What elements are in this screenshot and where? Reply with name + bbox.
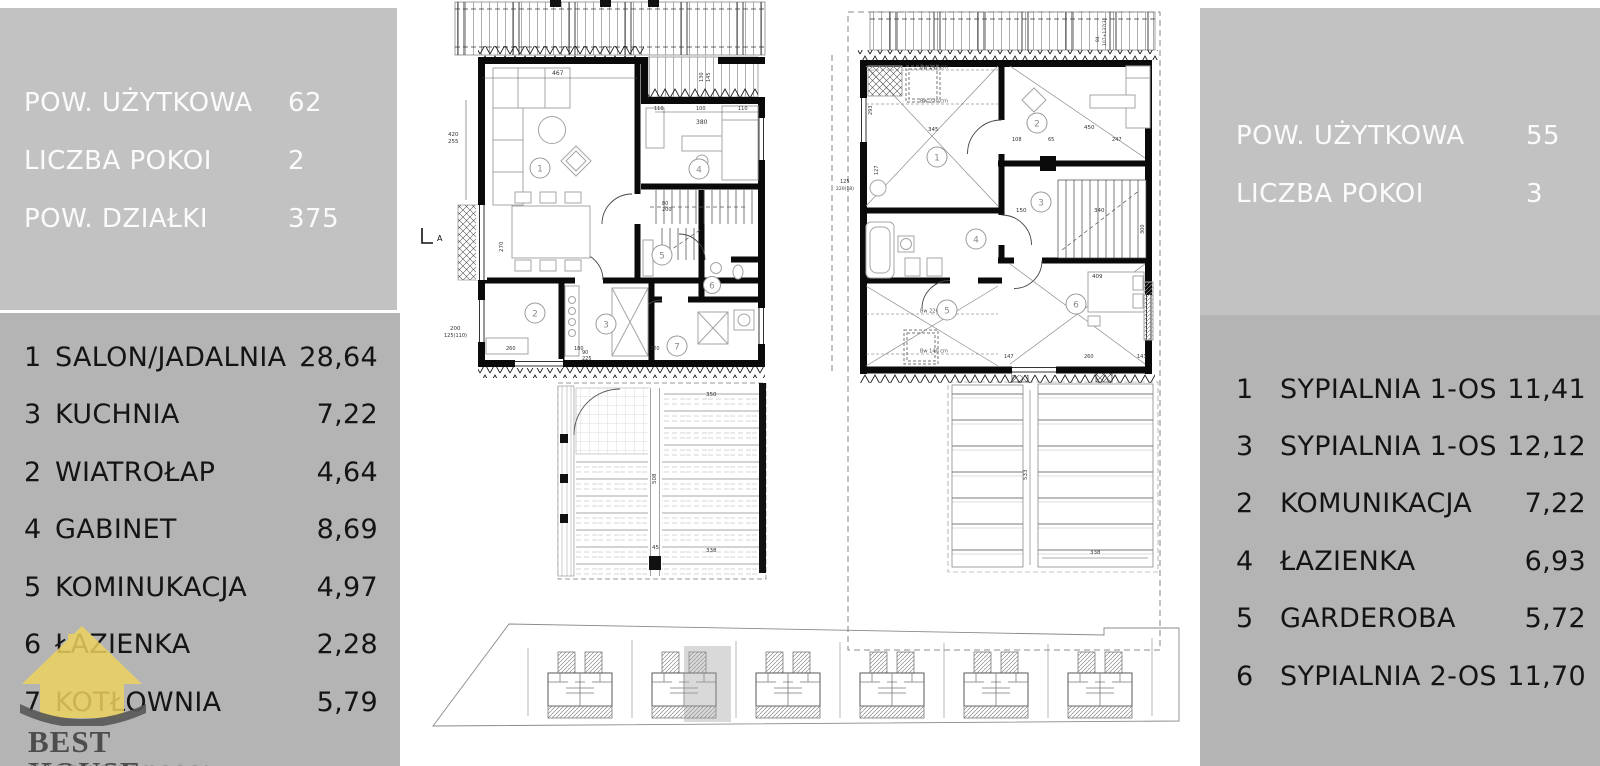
stairs (1058, 180, 1146, 258)
dim-label: 508 (652, 473, 658, 484)
dim-label: 145 (706, 72, 712, 82)
room-area: 7,22 (317, 399, 378, 430)
room-name: KOMUNIKACJA (1280, 488, 1472, 519)
dim-label: 125 (840, 179, 850, 185)
stat-value: 3 (1526, 179, 1543, 209)
dim-label: 350 (706, 392, 717, 398)
room-number: 6 (1236, 661, 1253, 692)
room-number: 2 (24, 457, 41, 488)
room-label: 3 (603, 321, 609, 331)
room-number: 5 (24, 572, 41, 603)
dim-label: 100 (696, 106, 706, 112)
dim-label: 260 (1084, 354, 1094, 360)
right-stats-panel: POW. UŻYTKOWA 55 LICZBA POKOI 3 (1200, 8, 1600, 315)
room-area: 7,22 (1525, 488, 1586, 519)
room-label: 1 (934, 154, 940, 164)
room-label: 7 (674, 343, 680, 353)
terrace-deck-left: 350 508 45 338 (558, 383, 766, 579)
dim-label: 110 (654, 106, 664, 112)
stat-row: POW. UŻYTKOWA 62 (24, 88, 379, 118)
room-name: SYPIALNIA 1-OS (1280, 374, 1497, 405)
dim-label: 65 (1048, 137, 1054, 143)
section-label: A (437, 234, 443, 243)
room-label: 5 (944, 307, 950, 317)
stat-value: 62 (288, 88, 322, 118)
stat-value: 2 (288, 146, 305, 176)
stat-row: LICZBA POKOI 3 (1224, 179, 1582, 209)
room-name: GABINET (55, 514, 177, 545)
room-area: 11,41 (1507, 374, 1586, 405)
stat-label: POW. UŻYTKOWA (1236, 121, 1465, 151)
wall-hatch (478, 367, 765, 378)
site-plan (433, 624, 1179, 726)
room-name: WIATROŁAP (55, 457, 215, 488)
room-area: 2,28 (317, 629, 378, 660)
dim-label: 84 (1095, 36, 1101, 42)
terrace-deck-right: 533 338 (948, 382, 1158, 572)
room-number: 2 (1236, 488, 1253, 519)
dim-label: Bw 140 cm (920, 65, 948, 71)
dim-label: 340 (1094, 208, 1105, 214)
dim-label: 127 (874, 165, 880, 175)
dim-label: 380 (696, 119, 708, 126)
room-area: 28,64 (299, 342, 378, 373)
architectural-drawings: 1 2 3 4 5 6 7 467 420 255 (400, 0, 1200, 766)
dim-label: 247 (1112, 137, 1122, 143)
room-area: 5,79 (317, 687, 378, 718)
dim-label: 125(110) (444, 333, 467, 339)
room-area: 8,69 (317, 514, 378, 545)
room-area: 4,97 (317, 572, 378, 603)
room-area: 11,70 (1507, 661, 1586, 692)
room-name: KOMINUKACJA (55, 572, 247, 603)
room-area: 6,93 (1525, 546, 1586, 577)
dim-label: 143 (1137, 354, 1147, 360)
room-number: 5 (1236, 603, 1253, 634)
room-label: 2 (532, 310, 538, 320)
stat-label: POW. UŻYTKOWA (24, 88, 253, 118)
dim-label: 260 (506, 346, 516, 352)
room-label: 6 (709, 282, 714, 292)
room-label: 4 (696, 166, 702, 176)
dim-label: 220(18) (836, 186, 854, 192)
dim-label: 409 (1092, 274, 1103, 280)
dim-label: 147 (1004, 354, 1014, 360)
room-label: 3 (1038, 199, 1044, 209)
dim-label: 345 (928, 127, 939, 133)
room-number: 4 (24, 514, 41, 545)
dim-label: 450 (1084, 125, 1095, 131)
dim-label: 255 (448, 139, 459, 145)
best-house-logo: BEST HOUSE NIERUCHOMOŚCI (0, 612, 210, 766)
house-icon (16, 620, 150, 726)
floor-plan-ground: 1 2 3 4 5 6 7 467 420 255 (422, 0, 767, 378)
dim-label: 200 (662, 207, 672, 213)
left-stats-panel: POW. UŻYTKOWA 62 LICZBA POKOI 2 POW. DZI… (0, 8, 397, 310)
dim-label: 150 (1016, 208, 1027, 214)
dim-label: 270 (499, 241, 505, 252)
site-house (1068, 652, 1132, 718)
site-house (548, 652, 612, 718)
stat-label: POW. DZIAŁKI (24, 204, 208, 234)
dim-label: 533 (1023, 469, 1029, 480)
dim-label: 110 (738, 106, 748, 112)
dim-label: Bw 140 cm (920, 349, 948, 355)
window-sill-hatch (458, 205, 478, 280)
room-label: 1 (537, 165, 543, 175)
site-house (860, 652, 924, 718)
room-area: 4,64 (317, 457, 378, 488)
room-name: GARDEROBA (1280, 603, 1456, 634)
stat-label: LICZBA POKOI (1236, 179, 1424, 209)
dim-label: 420 (448, 132, 459, 138)
dim-label: 293 (868, 105, 874, 115)
stat-row: POW. DZIAŁKI 375 (24, 204, 379, 234)
site-house (756, 652, 820, 718)
room-number: 1 (1236, 374, 1253, 405)
dim-label: 300 (1140, 224, 1146, 234)
dim-label: 45 (652, 545, 659, 551)
dim-label: 467 (552, 70, 564, 77)
room-name: SALON/JADALNIA (55, 342, 286, 373)
room-label: 5 (659, 252, 665, 262)
site-house (964, 652, 1028, 718)
room-label: 2 (1034, 120, 1040, 130)
room-label: 4 (973, 236, 979, 246)
flyer-canvas: POW. UŻYTKOWA 62 LICZBA POKOI 2 POW. DZI… (0, 0, 1600, 766)
dim-label: 180 (574, 346, 584, 352)
stat-value: 375 (288, 204, 339, 234)
dim-label: 225 (582, 356, 592, 362)
dim-label: 130 (699, 72, 705, 82)
room-name: KUCHNIA (55, 399, 180, 430)
dim-label: 338 (706, 548, 717, 554)
dim-label: 200 (450, 326, 461, 332)
dim-label: 338 (1090, 550, 1101, 556)
dim-label: 320 (650, 346, 660, 352)
logo-title: BEST HOUSE (28, 726, 210, 766)
room-name: SYPIALNIA 2-OS (1280, 661, 1497, 692)
dim-label: 107+137(3) (1102, 18, 1108, 46)
selected-plot-highlight (684, 646, 731, 722)
room-name: SYPIALNIA 1-OS (1280, 431, 1497, 462)
room-number: 3 (24, 399, 41, 430)
stat-row: LICZBA POKOI 2 (24, 146, 379, 176)
room-number: 3 (1236, 431, 1253, 462)
room-number: 4 (1236, 546, 1253, 577)
room-area: 5,72 (1525, 603, 1586, 634)
section-marker: A (422, 228, 443, 243)
room-label: 6 (1073, 301, 1079, 311)
right-room-list-panel: 1 SYPIALNIA 1-OS 11,41 3 SYPIALNIA 1-OS … (1200, 315, 1600, 766)
stat-label: LICZBA POKOI (24, 146, 212, 176)
dim-label: 108 (1012, 137, 1022, 143)
stat-value: 55 (1526, 121, 1560, 151)
stat-row: POW. UŻYTKOWA 55 (1224, 121, 1582, 151)
room-area: 12,12 (1507, 431, 1586, 462)
wall-hatch (478, 46, 644, 57)
room-number: 1 (24, 342, 41, 373)
room-name: ŁAZIENKA (1280, 546, 1415, 577)
